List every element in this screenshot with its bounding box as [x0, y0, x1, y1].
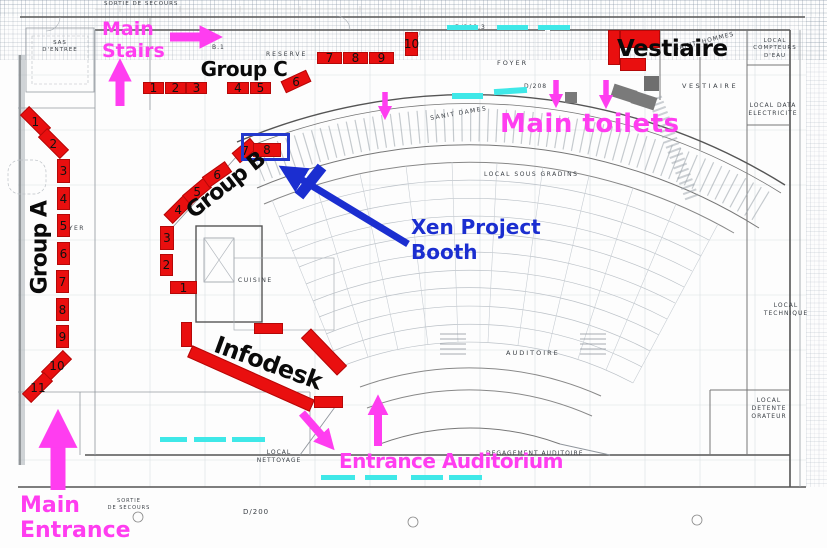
- plan-label-d200: D/200: [243, 508, 269, 517]
- annotation-main-stairs: Main Stairs: [102, 19, 165, 63]
- floorplan-canvas: SORTIE DE SECOURS SAS D'ENTREE RESERVE B…: [0, 0, 827, 548]
- plan-label-cuisine: CUISINE: [238, 277, 273, 285]
- cyan-strip-mid-1: [452, 93, 483, 99]
- booth-a7: 7: [56, 270, 69, 293]
- plan-label-sous-gradins: LOCAL SOUS GRADINS: [484, 171, 578, 179]
- cyan-strip-bottom-4: [449, 475, 482, 480]
- infodesk-shape-2: [254, 323, 283, 334]
- annotation-main-toilets: Main toilets: [500, 110, 680, 140]
- annotation-xen-booth: Xen Project Booth: [411, 215, 541, 265]
- cyan-strip-top-2: [497, 25, 528, 30]
- booth-c10: 10: [405, 32, 418, 56]
- booth-b1: 1: [170, 281, 197, 294]
- plan-label-local-data: LOCAL DATA ELECTRICITE: [744, 102, 802, 118]
- booth-a4: 4: [57, 187, 70, 210]
- infodesk-shape-5: [314, 396, 343, 408]
- booth-c7: 7: [317, 52, 342, 64]
- plan-label-b1: B.1: [212, 44, 225, 52]
- gray-desk-1: [644, 76, 659, 91]
- booth-b3: 3: [160, 226, 174, 250]
- cyan-strip-bottom-1: [321, 475, 355, 480]
- cyan-strip-low-3: [232, 437, 265, 442]
- cyan-strip-top-1: [447, 25, 478, 30]
- plan-label-d208: D/208: [524, 83, 547, 91]
- plan-label-local-nettoyage: LOCAL NETTOYAGE: [252, 449, 306, 465]
- booth-c4: 4: [227, 82, 249, 94]
- booth-c3: 3: [186, 82, 207, 94]
- booth-c5: 5: [250, 82, 271, 94]
- cyan-strip-top-3: [538, 25, 570, 30]
- booth-c1: 1: [143, 82, 164, 94]
- plan-label-compteurs-eau: LOCAL COMPTEURS D'EAU: [752, 38, 798, 60]
- booth-c2: 2: [165, 82, 186, 94]
- gray-desk-4: [565, 92, 577, 103]
- cyan-strip-bottom-2: [365, 475, 397, 480]
- cyan-strip-bottom-3: [411, 475, 443, 480]
- plan-label-foyer-center: FOYER: [497, 59, 528, 68]
- plan-label-local-technique: LOCAL TECHNIQUE: [760, 302, 812, 318]
- booth-a8: 8: [56, 298, 69, 321]
- annotation-entrance-auditorium: Entrance Auditorium: [339, 450, 563, 473]
- plan-label-vestiaire-room: VESTIAIRE: [682, 82, 738, 91]
- plan-label-auditoire: AUDITOIRE: [506, 349, 560, 358]
- booth-a3: 3: [57, 159, 70, 183]
- booth-c8: 8: [343, 52, 368, 64]
- annotation-group-a: Group A: [27, 188, 52, 308]
- annotation-vestiaire: Vestiaire: [617, 36, 728, 62]
- plan-label-local-detente: LOCAL DETENTE ORATEUR: [744, 397, 794, 421]
- booth-a9: 9: [56, 325, 69, 348]
- booth-a5: 5: [57, 214, 70, 237]
- booth-a6: 6: [57, 242, 70, 265]
- annotation-group-c: Group C: [199, 58, 289, 81]
- annotation-main-entrance: Main Entrance: [20, 493, 131, 544]
- grid-bubbles: [133, 512, 702, 527]
- cyan-strip-low-1: [160, 437, 187, 442]
- plan-label-sas-entree: SAS D'ENTREE: [36, 40, 84, 55]
- infodesk-shape-1: [181, 322, 192, 347]
- cyan-strip-low-2: [194, 437, 226, 442]
- booth-c9: 9: [369, 52, 394, 64]
- plan-label-sortie-secours-top: SORTIE DE SECOURS: [104, 1, 178, 8]
- booth-b2: 2: [160, 254, 173, 276]
